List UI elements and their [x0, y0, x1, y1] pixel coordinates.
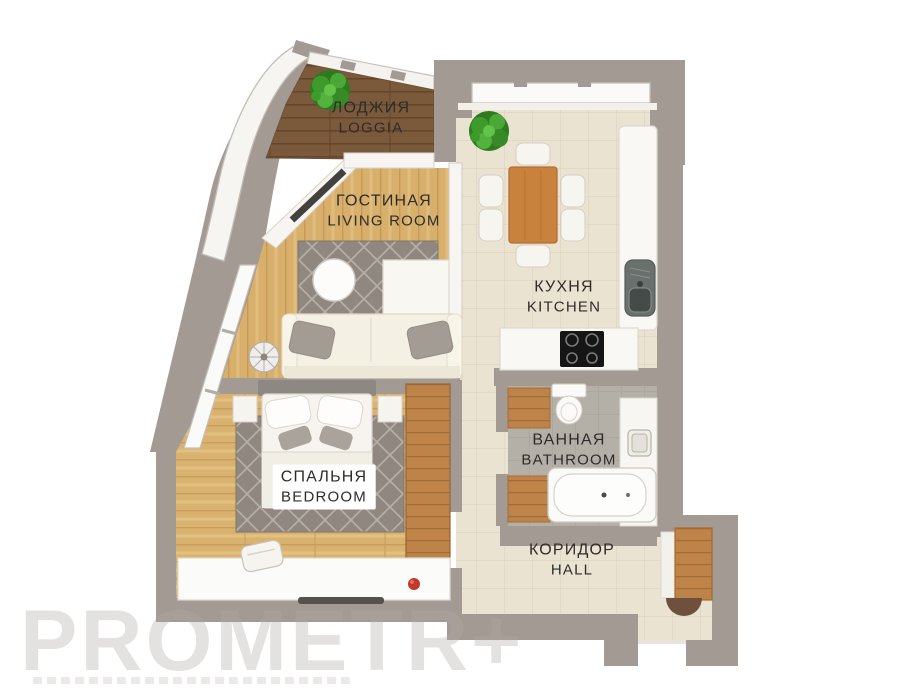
entrance-door — [638, 640, 686, 666]
kitchen-window-band — [458, 79, 657, 110]
living-label-ru: ГОСТИНАЯ — [327, 191, 440, 212]
kitchen-sink — [625, 260, 655, 316]
kitchen-label-en: KITCHEN — [527, 298, 601, 318]
watermark-fineprint — [33, 677, 353, 684]
floor-fan — [249, 342, 279, 372]
floor-plan-drawing — [0, 0, 900, 700]
bathroom-cabinet-bottom — [508, 476, 550, 522]
room-label-living: ГОСТИНАЯ LIVING ROOM — [327, 191, 440, 232]
bathroom-label-ru: ВАННАЯ — [521, 430, 616, 451]
loggia-label-ru: ЛОДЖИЯ — [332, 98, 410, 119]
bedroom-label-ru: СПАЛЬНЯ — [281, 467, 368, 488]
room-label-hall: КОРИДОР HALL — [529, 540, 615, 581]
room-label-kitchen: КУХНЯ KITCHEN — [527, 277, 601, 318]
bathroom-label-en: BATHROOM — [521, 451, 616, 471]
wardrobe — [406, 384, 450, 566]
nightstand-left — [233, 396, 257, 422]
floor-plan: ЛОДЖИЯ LOGGIA ГОСТИНАЯ LIVING ROOM КУХНЯ… — [0, 0, 900, 700]
sofa — [282, 314, 462, 378]
red-vase — [408, 578, 420, 590]
bathroom-cabinet-top — [508, 388, 550, 428]
loggia-label-en: LOGGIA — [332, 119, 410, 139]
room-label-bedroom: СПАЛЬНЯ BEDROOM — [273, 465, 376, 510]
hall-label-ru: КОРИДОР — [529, 540, 615, 561]
hall-label-en: HALL — [529, 561, 615, 581]
nightstand-right — [378, 396, 402, 422]
bathtub — [548, 468, 656, 522]
kitchen-label-ru: КУХНЯ — [527, 277, 601, 298]
coffee-table — [313, 259, 355, 301]
cooktop — [560, 331, 604, 367]
bathroom-sink — [628, 430, 651, 456]
dining-table — [509, 167, 557, 243]
room-label-loggia: ЛОДЖИЯ LOGGIA — [332, 98, 410, 139]
room-label-bathroom: ВАННАЯ BATHROOM — [521, 430, 616, 471]
bedroom-label-en: BEDROOM — [281, 488, 368, 508]
hall-wardrobe — [661, 528, 712, 600]
living-label-en: LIVING ROOM — [327, 212, 440, 232]
plant-icon — [469, 111, 509, 151]
ottoman — [383, 260, 449, 317]
